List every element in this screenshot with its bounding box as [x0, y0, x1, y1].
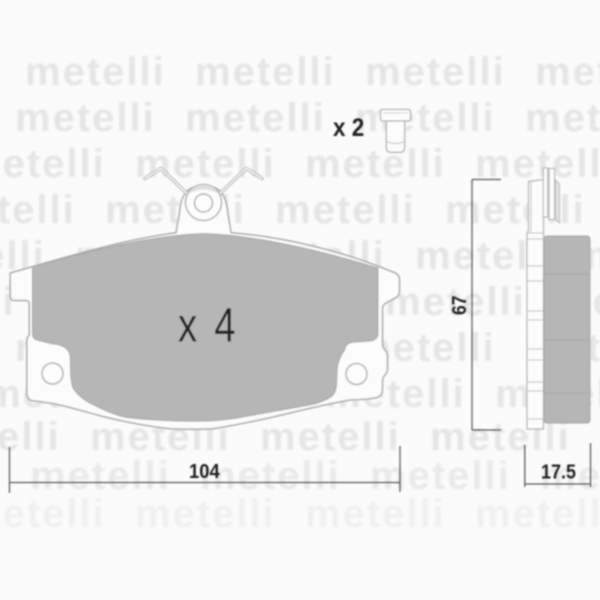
svg-text:x 4: x 4: [178, 300, 239, 353]
svg-text:metelli: metelli: [535, 50, 600, 94]
svg-text:metelli: metelli: [305, 142, 446, 186]
svg-text:metelli: metelli: [275, 188, 416, 232]
svg-text:x 2: x 2: [333, 114, 364, 142]
svg-text:metelli: metelli: [355, 96, 496, 140]
svg-text:metelli: metelli: [0, 492, 106, 536]
svg-text:metelli: metelli: [0, 142, 106, 186]
svg-text:metelli: metelli: [15, 96, 156, 140]
svg-text:104: 104: [189, 461, 220, 483]
svg-text:metelli: metelli: [0, 188, 76, 232]
svg-text:metelli: metelli: [185, 96, 326, 140]
svg-text:metelli: metelli: [445, 188, 586, 232]
svg-text:metelli: metelli: [365, 50, 506, 94]
svg-text:metelli: metelli: [195, 50, 336, 94]
svg-text:metelli: metelli: [25, 50, 166, 94]
svg-text:67: 67: [448, 295, 470, 315]
svg-text:metelli: metelli: [305, 492, 446, 536]
svg-text:metelli: metelli: [135, 492, 276, 536]
svg-text:metelli: metelli: [475, 492, 600, 536]
svg-text:metelli: metelli: [135, 142, 276, 186]
svg-text:metelli: metelli: [525, 96, 600, 140]
svg-text:17.5: 17.5: [541, 462, 576, 484]
svg-text:metelli: metelli: [260, 415, 401, 459]
